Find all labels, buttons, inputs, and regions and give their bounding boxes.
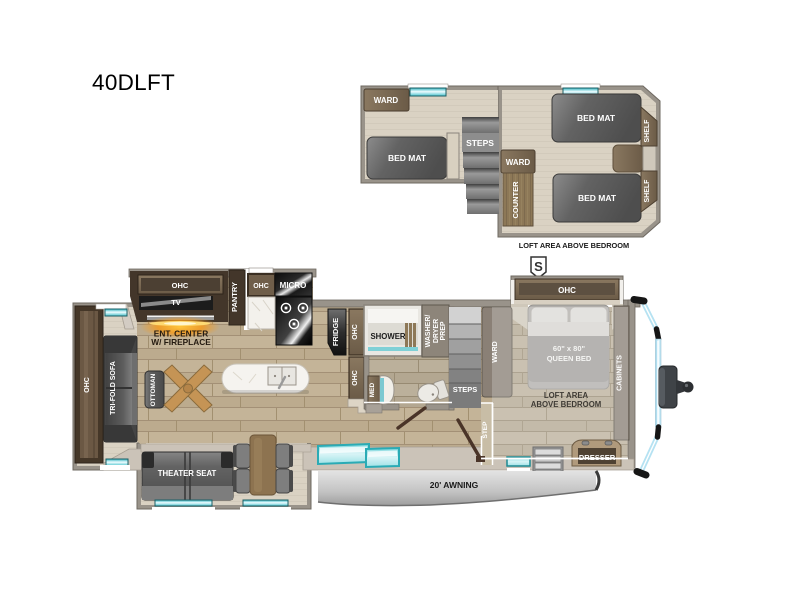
- svg-text:PREP: PREP: [440, 321, 447, 340]
- svg-text:SHOWER: SHOWER: [370, 332, 405, 341]
- svg-text:OHC: OHC: [253, 283, 269, 290]
- svg-text:BED MAT: BED MAT: [578, 193, 617, 203]
- svg-text:BED MAT: BED MAT: [577, 113, 616, 123]
- svg-text:20' AWNING: 20' AWNING: [430, 480, 479, 490]
- svg-text:WASHER/: WASHER/: [425, 315, 432, 348]
- svg-text:ABOVE BEDROOM: ABOVE BEDROOM: [531, 400, 602, 409]
- svg-text:STEPS: STEPS: [466, 138, 494, 148]
- svg-text:BED MAT: BED MAT: [388, 153, 427, 163]
- svg-text:40DLFT: 40DLFT: [92, 70, 175, 95]
- svg-text:PANTRY: PANTRY: [230, 282, 239, 312]
- svg-text:DRYER: DRYER: [433, 319, 440, 343]
- svg-text:SHELF: SHELF: [644, 179, 651, 203]
- svg-text:OHC: OHC: [172, 281, 189, 290]
- svg-text:THEATER SEAT: THEATER SEAT: [158, 469, 217, 478]
- svg-text:LOFT AREA ABOVE BEDROOM: LOFT AREA ABOVE BEDROOM: [519, 241, 629, 250]
- svg-text:STEP: STEP: [482, 421, 489, 439]
- svg-text:DRESSER: DRESSER: [579, 453, 616, 462]
- svg-text:OTTOMAN: OTTOMAN: [150, 373, 157, 406]
- svg-text:WARD: WARD: [374, 96, 399, 105]
- svg-text:OHC: OHC: [352, 370, 359, 386]
- svg-text:MED: MED: [369, 382, 376, 397]
- svg-text:WARD: WARD: [506, 158, 531, 167]
- svg-text:OHC: OHC: [352, 324, 359, 340]
- svg-text:TV: TV: [171, 298, 181, 307]
- svg-text:COUNTER: COUNTER: [511, 181, 520, 219]
- svg-text:OHC: OHC: [558, 286, 576, 295]
- svg-text:LOFT AREA: LOFT AREA: [544, 391, 589, 400]
- svg-text:W/ FIREPLACE: W/ FIREPLACE: [151, 337, 211, 347]
- svg-text:MICRO: MICRO: [280, 281, 307, 290]
- svg-text:S: S: [534, 259, 543, 274]
- svg-text:TRI-FOLD SOFA: TRI-FOLD SOFA: [110, 361, 117, 415]
- svg-text:FRIDGE: FRIDGE: [331, 318, 340, 346]
- svg-text:STEPS: STEPS: [453, 385, 478, 394]
- svg-text:SHELF: SHELF: [644, 119, 651, 143]
- svg-text:OHC: OHC: [84, 377, 91, 393]
